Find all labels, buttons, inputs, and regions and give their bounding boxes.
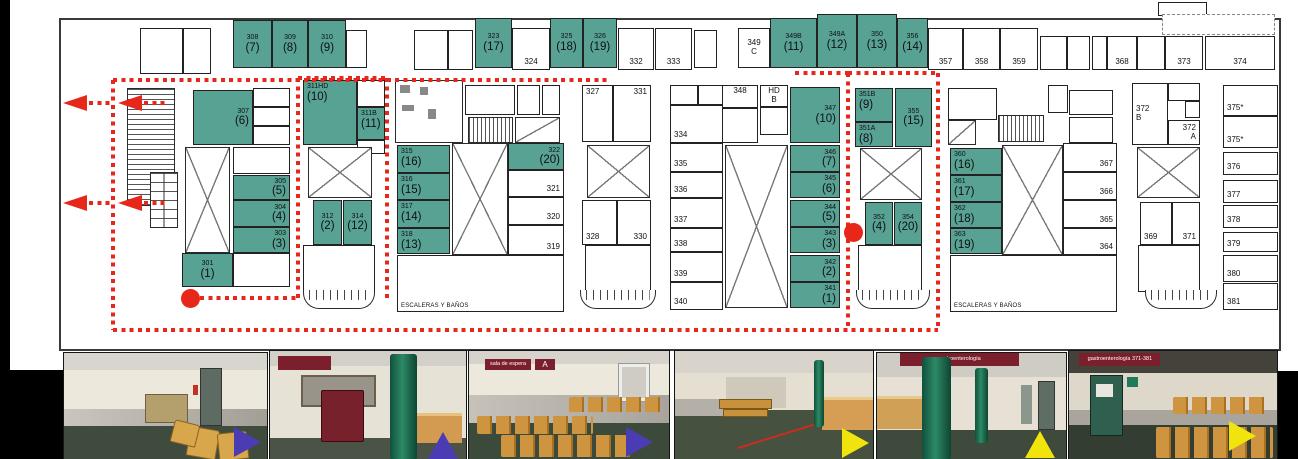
- room-310: 310(9): [308, 20, 346, 68]
- room-354: 354(20): [894, 202, 922, 245]
- photo-sign: gastroenterología: [900, 353, 1019, 366]
- courtyard-x: [185, 147, 230, 253]
- room-365: 365: [1063, 200, 1117, 228]
- diagonal-room: [948, 120, 976, 145]
- route-dotted-line: [848, 71, 938, 75]
- room: [585, 245, 651, 292]
- room-319: 319: [508, 225, 564, 255]
- room-364: 364: [1063, 228, 1117, 255]
- route-arrow-left: [118, 195, 142, 211]
- photo-exit-sign: [1127, 377, 1137, 387]
- room: [1185, 101, 1200, 118]
- photo-sign-letter: A: [535, 359, 555, 371]
- diagonal-room: [515, 117, 560, 143]
- room-347: 347(10): [790, 87, 840, 143]
- route-arrow-left: [63, 95, 87, 111]
- room-345: 345(6): [790, 172, 840, 198]
- room-307: 307(6): [193, 90, 253, 145]
- room: [1040, 36, 1067, 70]
- room-303: 303(3): [233, 227, 290, 253]
- route-marker-triangle: [1229, 421, 1256, 451]
- courtyard-x: [1137, 147, 1200, 198]
- room-349: 349C: [738, 28, 770, 68]
- room-368: 368: [1107, 36, 1137, 70]
- room: [858, 245, 922, 292]
- equipment-room: [395, 80, 463, 143]
- room-367: 367: [1063, 143, 1117, 172]
- photo-green-column: [975, 368, 988, 443]
- room-HD: HDB: [760, 85, 788, 107]
- room-309: 309(8): [272, 20, 308, 68]
- room-334: 334: [670, 105, 723, 143]
- route-dotted-line: [298, 76, 387, 80]
- photo-reception-desk: [269, 350, 467, 459]
- room-362: 362(18): [950, 202, 1002, 228]
- room: [948, 88, 997, 120]
- route-dotted-line: [296, 78, 300, 300]
- room-375*: 375*: [1223, 85, 1278, 116]
- room-371: 371: [1172, 202, 1200, 245]
- room-355: 355(15): [895, 88, 932, 147]
- photo-door: [200, 368, 222, 426]
- room: [253, 88, 290, 107]
- room-323: 323(17): [475, 18, 512, 68]
- room-311B: 311B(11): [357, 107, 385, 140]
- photo-sign: gastroenterología 371-381: [1079, 353, 1160, 366]
- courtyard-x: [308, 147, 372, 198]
- photo-ceiling: [675, 351, 873, 373]
- room-350: 350(13): [857, 14, 897, 68]
- floor-plan: 308(7)309(8)310(9)323(17)324325(18)326(1…: [0, 0, 1298, 348]
- room-301: 301(1): [182, 253, 233, 287]
- room-339: 339: [670, 252, 723, 282]
- room-308: 308(7): [233, 20, 272, 68]
- room: [1069, 90, 1113, 115]
- photo-bench: [719, 399, 772, 409]
- room: [1067, 36, 1090, 70]
- photo-corridor-red-line: [674, 350, 874, 459]
- photo-door-sign: [1096, 384, 1113, 397]
- room-361: 361(17): [950, 175, 1002, 202]
- route-dotted-line: [111, 80, 115, 330]
- room-360: 360(16): [950, 148, 1002, 175]
- room: [253, 107, 290, 126]
- room-342: 342(2): [790, 255, 840, 282]
- room-341: 341(1): [790, 282, 840, 308]
- route-dotted-line: [113, 328, 938, 332]
- room-356: 356(14): [897, 18, 928, 68]
- photo-green-column: [814, 360, 824, 428]
- room-320: 320: [508, 197, 564, 225]
- room-377: 377: [1223, 180, 1278, 203]
- room-327: 327: [582, 85, 613, 142]
- room-352: 352(4): [865, 202, 893, 245]
- bay-window: [1145, 290, 1217, 309]
- room-304: 304(4): [233, 200, 290, 227]
- photo-cart: [321, 390, 364, 442]
- photo-waiting-corner: [63, 352, 268, 459]
- route-dotted-line: [89, 101, 111, 105]
- room-336: 336: [670, 172, 723, 198]
- room: [760, 107, 788, 135]
- room-374: 374: [1205, 36, 1275, 70]
- route-dotted-line: [144, 201, 166, 205]
- route-arrow-left: [63, 195, 87, 211]
- room: [1048, 85, 1068, 113]
- photo-cabinet: [145, 394, 188, 424]
- room-369: 369: [1140, 202, 1172, 245]
- letterbox-bottom-left: [0, 370, 64, 459]
- room-ESCALERASYBAOS: ESCALERAS Y BAÑOS: [397, 255, 564, 312]
- route-dotted-line: [846, 73, 850, 330]
- bay-window: [856, 290, 930, 309]
- room-314: 314(12): [343, 200, 372, 245]
- stairs: [998, 115, 1044, 142]
- route-marker-triangle: [1025, 431, 1055, 458]
- room: [542, 85, 560, 115]
- route-marker-triangle: [234, 427, 261, 457]
- photo-door: [1038, 381, 1055, 430]
- route-dotted-line: [200, 296, 297, 300]
- room: [233, 253, 290, 287]
- room-340: 340: [670, 282, 723, 310]
- route-marker-triangle: [842, 428, 869, 458]
- courtyard-x: [860, 148, 922, 200]
- room-322: 322(20): [508, 143, 564, 170]
- route-marker-triangle: [626, 427, 653, 457]
- photo-corridor-columns: gastroenterología: [876, 352, 1067, 459]
- room-305: 305(5): [233, 175, 290, 200]
- room-330: 330: [617, 200, 651, 245]
- room: [1138, 245, 1200, 292]
- room: [517, 85, 540, 115]
- room-378: 378: [1223, 205, 1278, 228]
- photo-chair-row: [477, 416, 593, 433]
- room-331: 331: [613, 85, 651, 142]
- room: [1162, 14, 1275, 35]
- room-351B: 351B(9): [855, 88, 893, 122]
- route-endpoint-dot: [181, 289, 200, 308]
- courtyard-x: [1002, 145, 1063, 255]
- route-dotted-line: [936, 73, 940, 330]
- room-359: 359: [1000, 28, 1038, 70]
- photo-green-column: [390, 354, 417, 459]
- room-375*: 375*: [1223, 116, 1278, 148]
- room-381: 381: [1223, 283, 1278, 310]
- photo-chair-row: [569, 397, 661, 412]
- elevator: [150, 172, 178, 228]
- room: [698, 85, 723, 105]
- room-363: 363(19): [950, 228, 1002, 254]
- courtyard-x: [452, 143, 508, 255]
- room: [303, 245, 375, 292]
- photo-framed-picture: [619, 364, 649, 401]
- room: [1137, 36, 1165, 70]
- room: [670, 85, 698, 105]
- room-335: 335: [670, 143, 723, 172]
- room-380: 380: [1223, 255, 1278, 282]
- room: [414, 30, 448, 70]
- stairs: [468, 117, 513, 143]
- room: [183, 28, 211, 74]
- room: [346, 30, 367, 68]
- room-349A: 349A(12): [817, 14, 857, 68]
- room-311HD: 311HD(10): [303, 80, 357, 145]
- room-372: 372B: [1132, 83, 1168, 145]
- room-357: 357: [928, 28, 963, 70]
- room: [1069, 117, 1113, 143]
- room-316: 316(15): [397, 173, 450, 200]
- room-346: 346(7): [790, 145, 840, 172]
- courtyard-x: [587, 145, 650, 198]
- figure-canvas: 308(7)309(8)310(9)323(17)324325(18)326(1…: [0, 0, 1298, 459]
- route-dotted-line: [144, 101, 166, 105]
- room-348: 348: [722, 85, 758, 108]
- room-351A: 351A(8): [855, 122, 893, 147]
- room-366: 366: [1063, 172, 1117, 200]
- room-379: 379: [1223, 232, 1278, 252]
- room-343: 343(3): [790, 227, 840, 253]
- room-312: 312(2): [313, 200, 342, 245]
- photo-waiting-room-a: sala de espera A: [468, 350, 670, 459]
- photo-ceiling: [64, 353, 267, 370]
- room-318: 318(13): [397, 228, 450, 254]
- letterbox-bottom-right: [1277, 371, 1298, 459]
- room: [448, 30, 473, 70]
- route-arrow-left: [118, 95, 142, 111]
- photo-sign: sala de espera: [485, 359, 531, 371]
- photo-bench: [723, 409, 769, 418]
- room-349B: 349B(11): [770, 18, 817, 68]
- room-333: 333: [655, 28, 692, 70]
- room-ESCALERASYBAOS: ESCALERAS Y BAÑOS: [950, 255, 1117, 312]
- room: [357, 80, 385, 107]
- room-373: 373: [1165, 36, 1203, 70]
- room: [465, 85, 515, 115]
- room-344: 344(5): [790, 200, 840, 227]
- room-315: 315(16): [397, 145, 450, 173]
- room: [140, 28, 183, 74]
- photo-waiting-room-dark: gastroenterología 371-381: [1068, 350, 1278, 459]
- room: [233, 147, 290, 174]
- room-358: 358: [963, 28, 1000, 70]
- route-marker-triangle: [428, 432, 458, 459]
- photo-door: [1021, 385, 1032, 424]
- photo-sign: [278, 356, 331, 370]
- room: [253, 126, 290, 145]
- room-372: 372A: [1168, 120, 1200, 145]
- room-317: 317(14): [397, 200, 450, 228]
- room-332: 332: [618, 28, 654, 70]
- photo-chair-row: [501, 435, 633, 457]
- room: [1092, 36, 1107, 70]
- bay-window: [580, 290, 656, 309]
- room: [694, 30, 717, 68]
- route-dotted-line: [89, 201, 111, 205]
- photo-green-column: [922, 357, 950, 459]
- bay-window: [303, 290, 375, 309]
- room-376: 376: [1223, 152, 1278, 175]
- room-337: 337: [670, 198, 723, 228]
- room-326: 326(19): [583, 18, 617, 68]
- route-dotted-line: [385, 78, 389, 300]
- room-338: 338: [670, 228, 723, 252]
- courtyard-x: [725, 145, 788, 308]
- room: [722, 108, 758, 143]
- room-328: 328: [582, 200, 617, 245]
- room-321: 321: [508, 170, 564, 197]
- photo-chair-row: [1173, 397, 1265, 414]
- room: [1168, 83, 1200, 101]
- room-324: 324: [512, 28, 550, 70]
- photo-counter: [822, 397, 873, 431]
- room-325: 325(18): [550, 18, 583, 68]
- photo-extinguisher: [193, 385, 198, 395]
- route-dotted-line: [795, 71, 848, 75]
- photo-desk: [877, 396, 922, 429]
- route-endpoint-dot: [844, 223, 863, 242]
